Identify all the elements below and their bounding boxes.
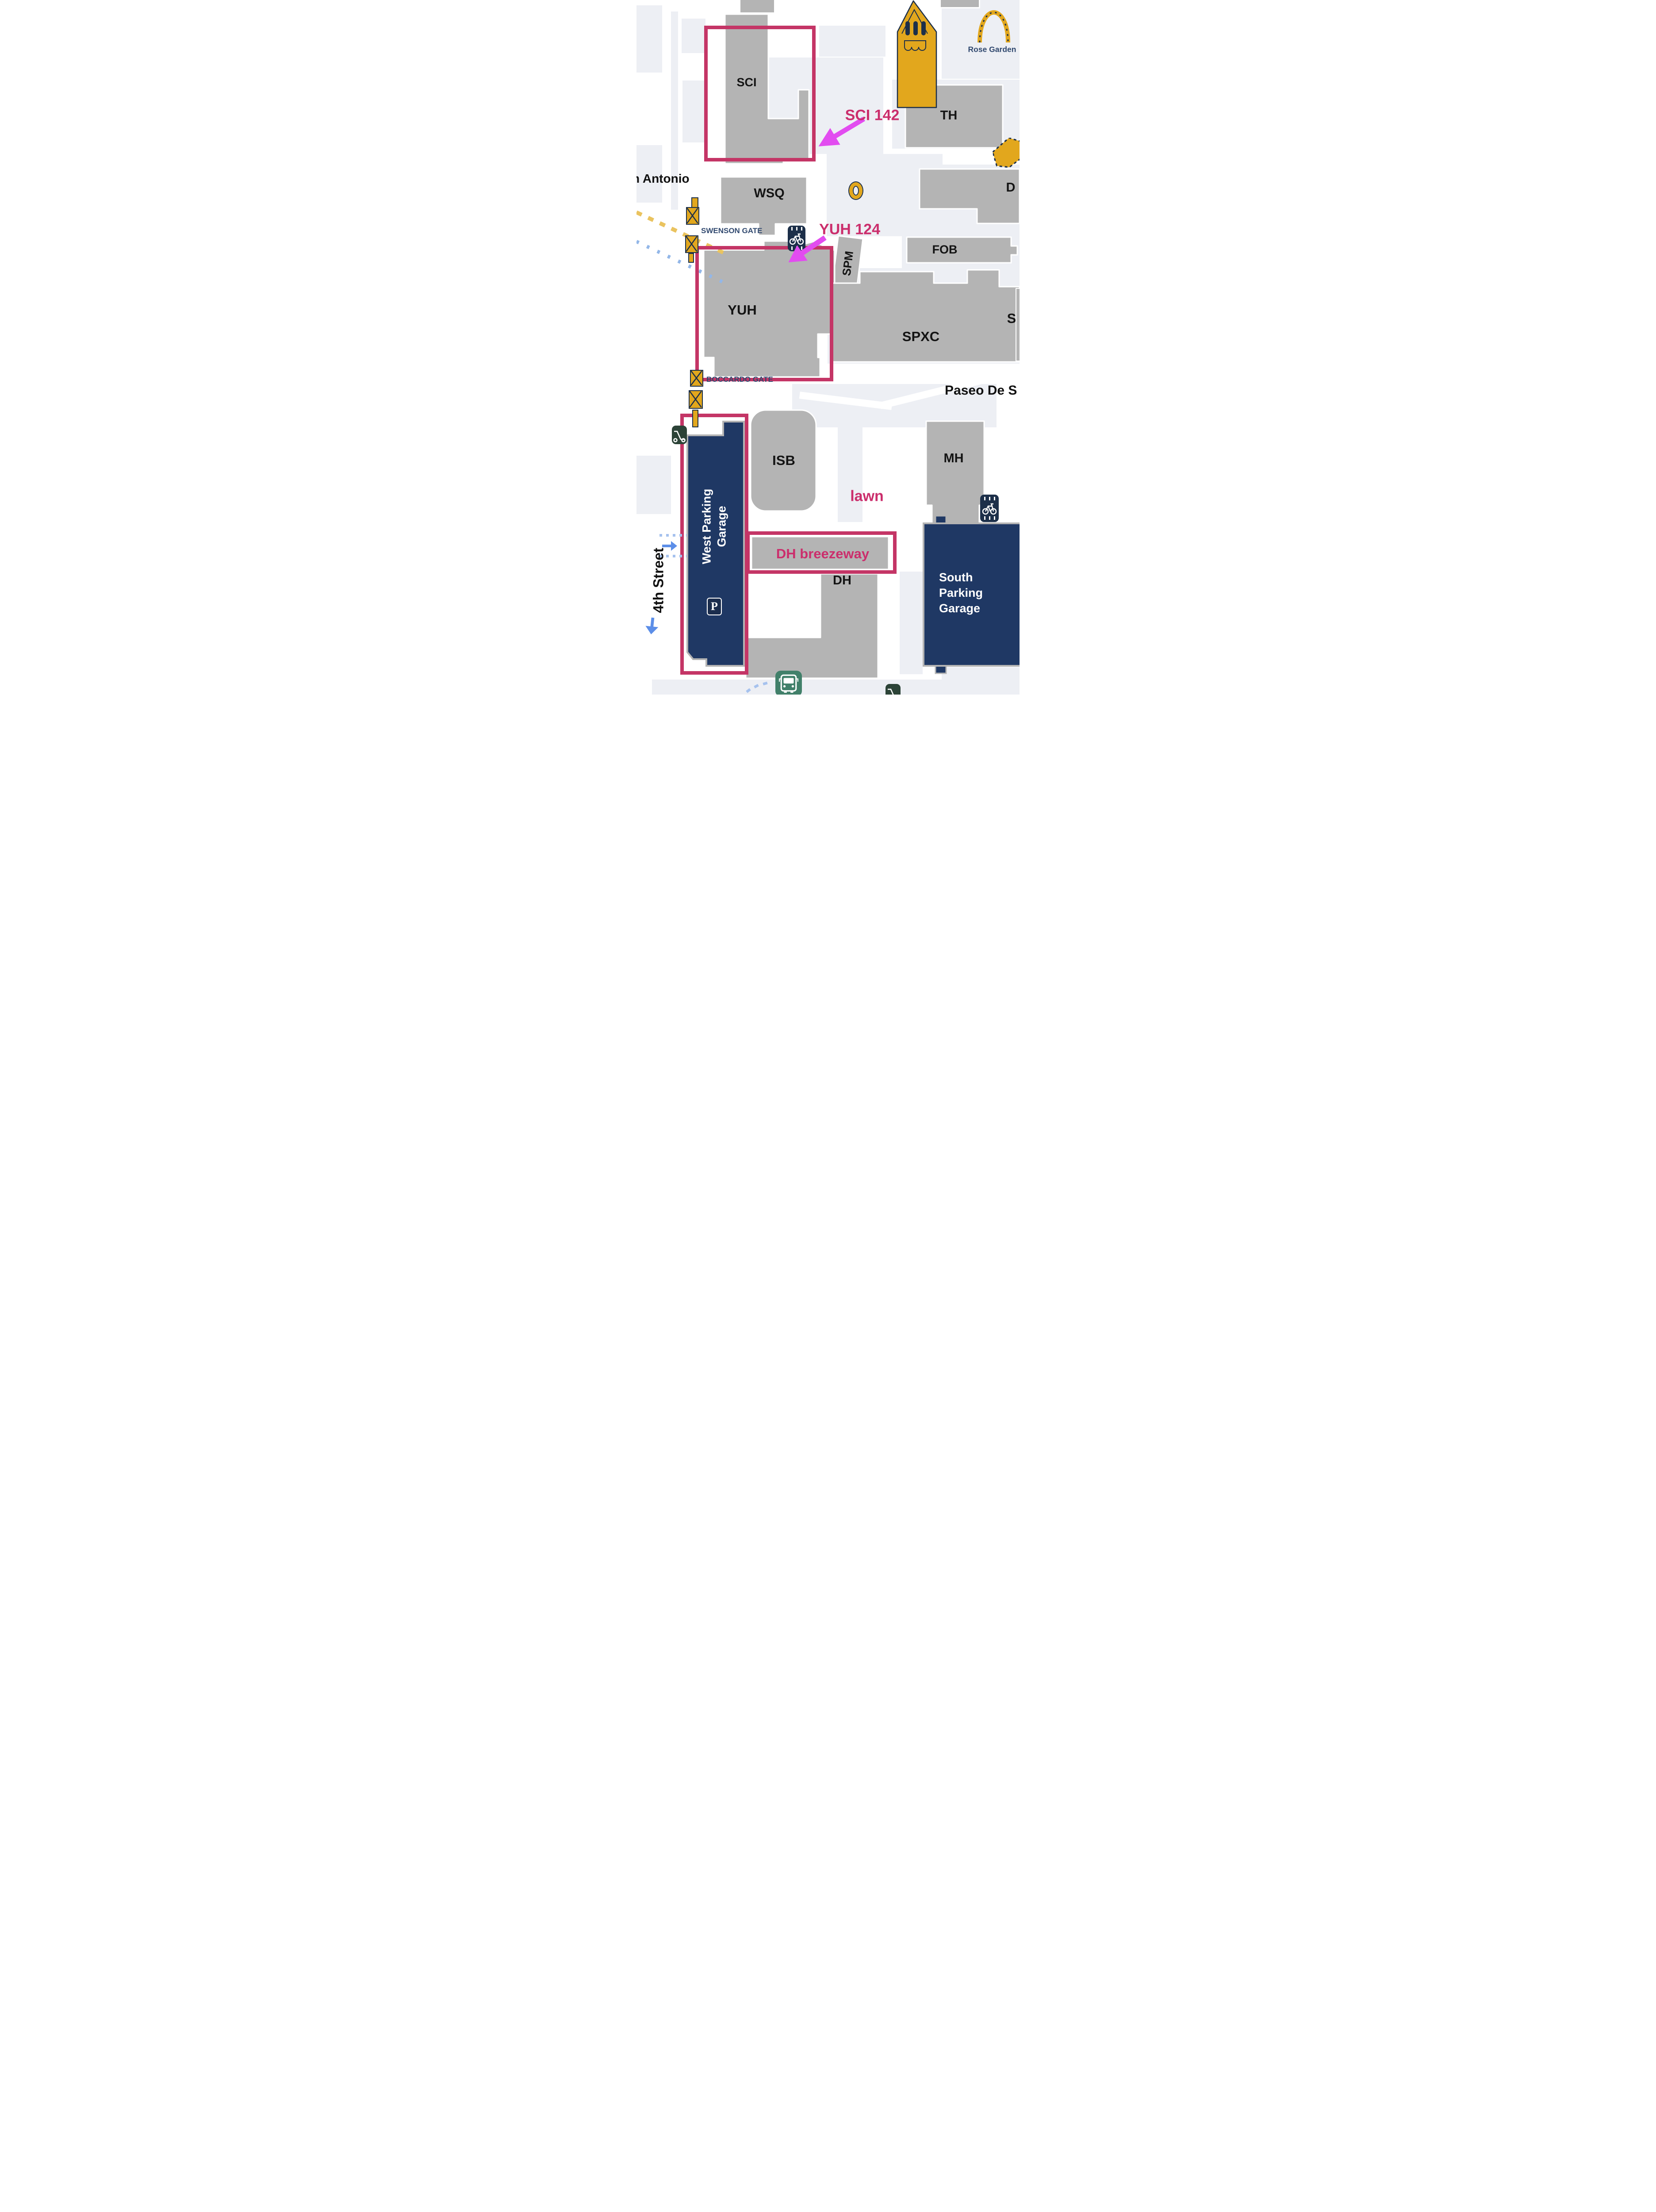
label-south-garage: South Parking Garage <box>939 570 1005 616</box>
scooter-icon <box>672 426 687 444</box>
blue-down-arrow <box>643 617 661 635</box>
annotation-yuh124: YUH 124 <box>819 221 880 238</box>
gate-icon-swenson-2 <box>685 235 698 253</box>
label-d: D <box>999 180 1020 196</box>
label-fob: FOB <box>920 242 970 257</box>
highlight-box-yuh <box>695 246 833 381</box>
rose-arch-icon <box>974 8 1014 43</box>
label-s-partial: S <box>1004 310 1020 327</box>
building-mh <box>926 421 984 524</box>
annotation-lawn: lawn <box>850 488 884 505</box>
bell-tower-icon <box>894 0 940 109</box>
gate-icon-boccardo-2 <box>689 390 703 409</box>
highlight-box-sci <box>704 26 816 161</box>
label-boccardo-gate: BOCCARDO GATE <box>706 375 773 384</box>
gate-icon-swenson-1 <box>686 207 699 225</box>
gold-structure-icon <box>991 137 1020 173</box>
gate-post-icon <box>688 253 694 263</box>
building-dh <box>746 574 878 678</box>
label-yuh: YUH <box>720 302 764 319</box>
building-d <box>920 169 1020 223</box>
parking-icon: P <box>707 598 722 615</box>
building-spxc <box>831 270 1020 362</box>
label-spxc: SPXC <box>893 328 949 345</box>
label-isb: ISB <box>762 452 806 469</box>
label-wsq: WSQ <box>743 186 796 201</box>
label-mh: MH <box>931 450 976 467</box>
label-west-garage: West Parking Garage <box>699 482 729 571</box>
gate-post-icon <box>692 410 698 427</box>
gate-post-icon <box>691 197 698 208</box>
bus-icon <box>775 671 802 695</box>
parking-symbol: P <box>711 600 718 613</box>
label-paseo: Paseo De S <box>945 383 1017 398</box>
label-4th-street: 4th Street <box>651 548 667 613</box>
crosswalk-dotted-line <box>659 534 687 537</box>
label-dh: DH <box>820 572 864 588</box>
campus-map: P SCI WSQ TH D FOB SPM YUH SPXC S ISB MH… <box>636 0 1020 695</box>
label-rose-garden: Rose Garden <box>968 45 1016 54</box>
label-th: TH <box>927 108 971 123</box>
annotation-dh-breezeway: DH breezeway <box>776 546 869 562</box>
crosswalk-dots <box>745 680 774 694</box>
annotation-sci142: SCI 142 <box>845 107 900 124</box>
label-sci: SCI <box>725 74 768 90</box>
gate-icon-boccardo-1 <box>690 370 703 387</box>
bike-lane-icon <box>980 495 999 522</box>
scooter-icon <box>885 684 901 695</box>
fountain-icon <box>849 182 862 199</box>
label-san-antonio: n Antonio <box>636 172 690 186</box>
label-swenson-gate: SWENSON GATE <box>701 227 763 235</box>
label-spm: SPM <box>839 250 856 276</box>
